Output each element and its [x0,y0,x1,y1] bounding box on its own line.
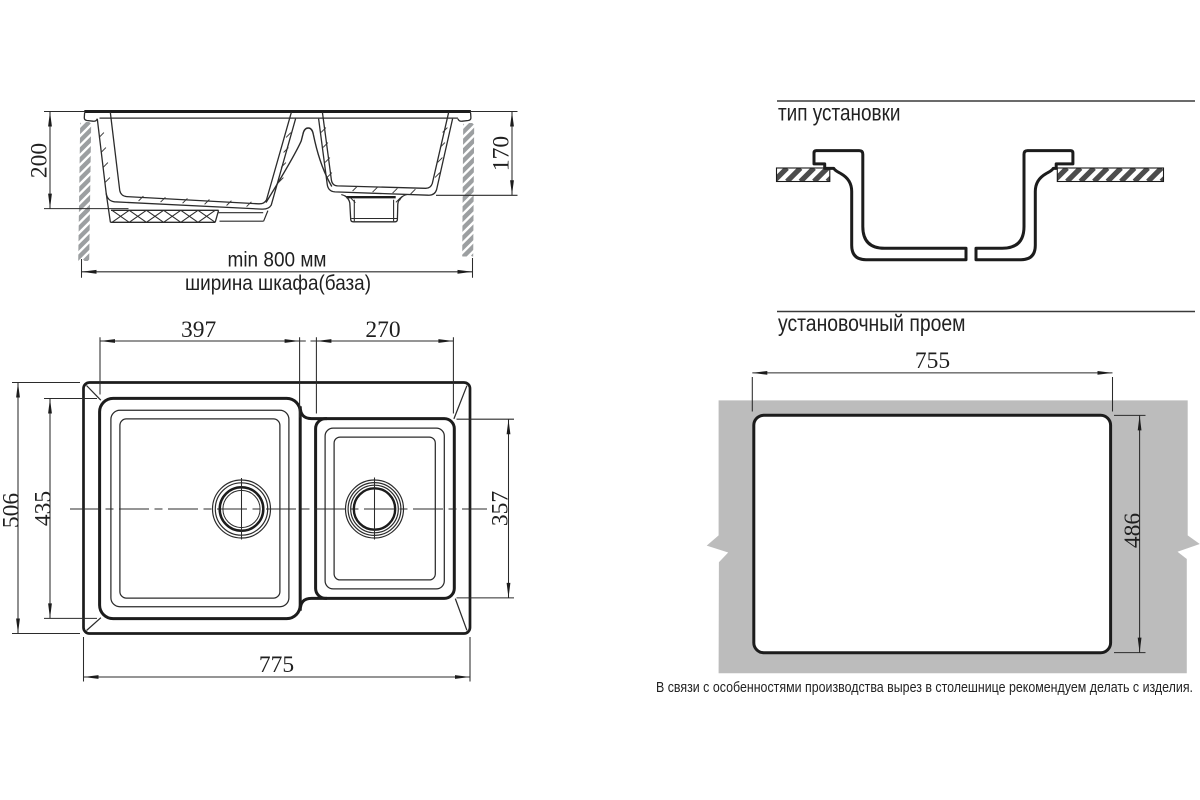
svg-text:486: 486 [1120,513,1146,549]
svg-text:170: 170 [489,136,515,171]
svg-text:435: 435 [31,491,57,526]
svg-text:357: 357 [488,491,514,527]
svg-text:установочный проем: установочный проем [778,310,966,336]
svg-text:270: 270 [365,317,400,343]
svg-text:ширина шкафа(база): ширина шкафа(база) [185,272,371,295]
svg-text:200: 200 [27,143,53,178]
svg-text:397: 397 [181,317,217,343]
svg-text:min 800 мм: min 800 мм [228,249,327,272]
svg-text:В связи с особенностями произв: В связи с особенностями производства выр… [656,679,1193,696]
svg-text:тип установки: тип установки [778,100,901,126]
svg-text:755: 755 [915,348,950,374]
svg-text:506: 506 [0,493,25,529]
svg-text:775: 775 [259,652,294,678]
